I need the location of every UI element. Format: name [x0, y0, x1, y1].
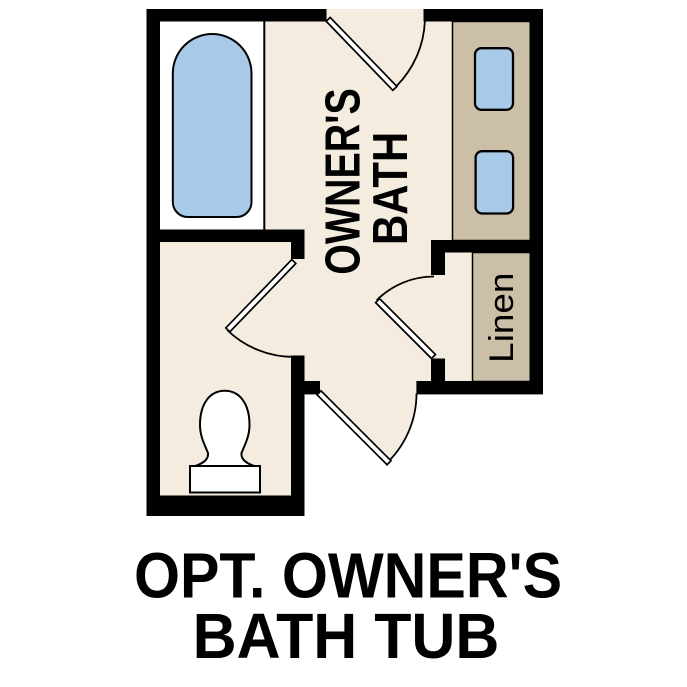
svg-text:BATH TUB: BATH TUB — [193, 601, 500, 673]
svg-text:BATH: BATH — [363, 132, 418, 245]
svg-text:Linen: Linen — [482, 273, 520, 363]
